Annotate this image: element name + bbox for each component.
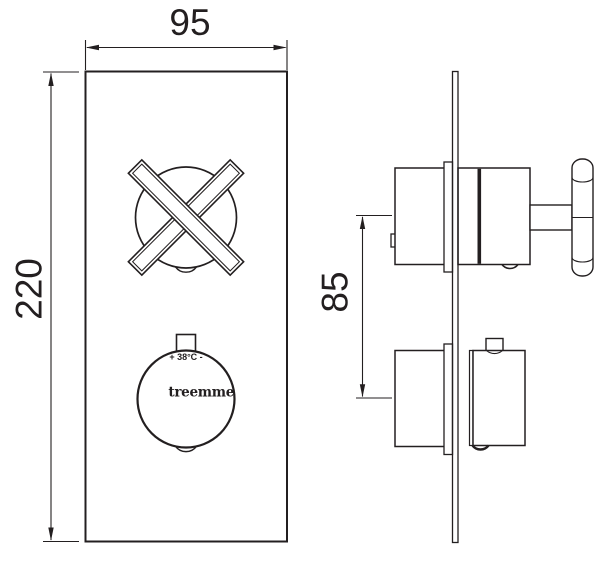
handle-stem-side xyxy=(530,205,572,230)
dim-arrow-top xyxy=(48,73,53,86)
dim-arrow-top xyxy=(360,216,365,229)
dim-arrow-bottom xyxy=(48,528,53,541)
temperature-label: + 38°C - xyxy=(169,352,202,362)
plate-width-value: 95 xyxy=(169,2,210,43)
thermostat-tab-side xyxy=(486,339,503,352)
mounting-plate-front xyxy=(86,72,288,542)
mounting-plate-side xyxy=(453,72,459,543)
side-view: 85 xyxy=(315,72,594,543)
mixer-technical-drawing: + 38°C - treemme 95 220 xyxy=(0,0,601,562)
handle-hub-side xyxy=(458,168,530,265)
cross-handle-front xyxy=(128,160,243,275)
dim-extension-lines xyxy=(86,40,288,70)
thermostat-flange-side xyxy=(444,344,453,455)
handle-hub-ring-band xyxy=(478,169,482,264)
dimension-plate-width: 95 xyxy=(86,2,288,70)
handle-spacing-value: 85 xyxy=(315,271,356,312)
technical-drawing-page: + 38°C - treemme 95 220 xyxy=(0,0,601,562)
cross-handle-side xyxy=(572,159,593,276)
dim-arrow-right xyxy=(274,45,287,50)
dim-arrow-bottom xyxy=(360,384,365,397)
dimension-plate-height: 220 xyxy=(9,72,80,542)
mixer-unit-side xyxy=(391,159,593,276)
plate-height-value: 220 xyxy=(9,258,50,320)
thermostat-body-side xyxy=(395,351,445,447)
brand-label: treemme xyxy=(168,385,234,401)
valve-body-side xyxy=(395,168,445,265)
valve-flange-side xyxy=(444,162,453,272)
dim-arrow-left xyxy=(86,45,99,50)
dim-extension-ticks xyxy=(356,216,392,399)
dimension-handle-spacing: 85 xyxy=(315,216,393,399)
thermostat-knob-side xyxy=(473,351,525,446)
thermostat-unit-side xyxy=(395,339,525,455)
front-view: + 38°C - treemme 95 220 xyxy=(9,2,288,542)
